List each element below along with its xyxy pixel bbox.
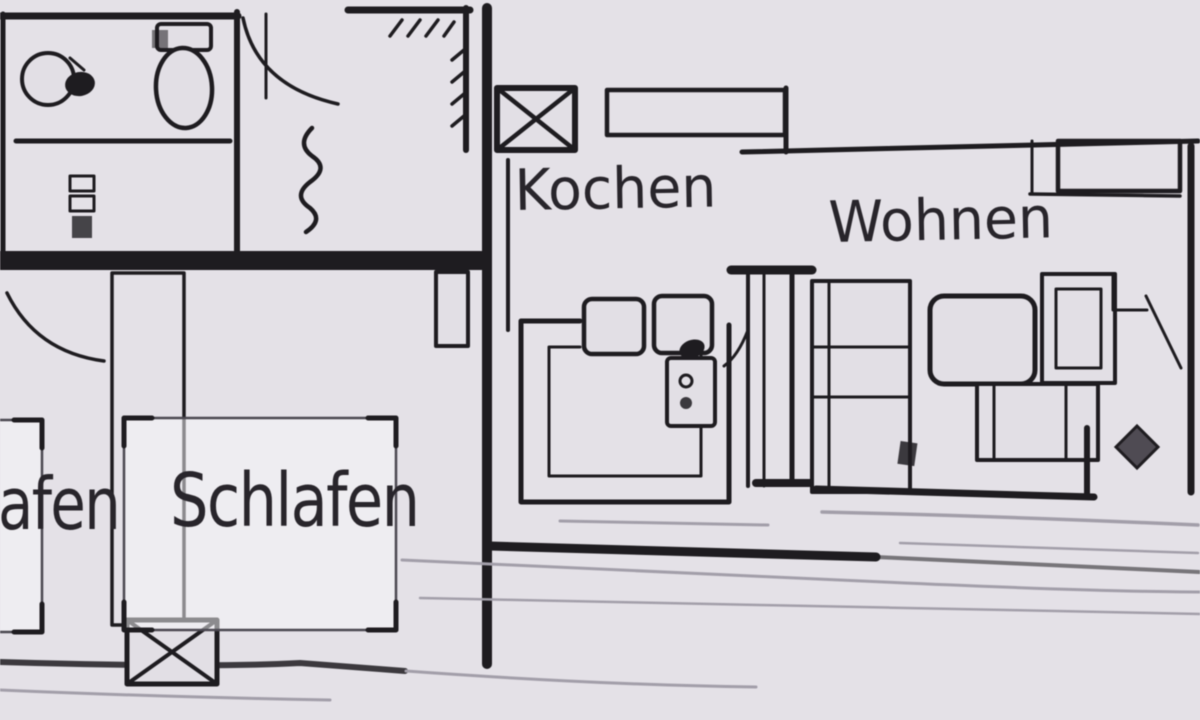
hallway	[243, 8, 470, 232]
thick-cross-wall	[0, 251, 492, 270]
kitchen-fixtures	[521, 296, 768, 525]
room-label-living: Wohnen	[828, 190, 1054, 252]
bathroom	[0, 12, 238, 266]
living-furniture	[812, 274, 1181, 497]
coffee-table-icon	[930, 296, 1035, 384]
annex-south-wall-faded	[876, 557, 1199, 572]
hatch-marks	[390, 20, 464, 126]
wardrobe	[436, 272, 468, 346]
door-swing-arc-left	[7, 293, 104, 361]
toilet-icon	[152, 24, 214, 129]
room-label-bedroom: Schlafen	[170, 464, 418, 538]
door-swing-arc	[243, 18, 338, 104]
armchair-icon	[1042, 274, 1115, 383]
room-label-bedroom-left: afen	[0, 468, 119, 540]
floorplan-sketch: Kochen Wohnen Schlafen afen	[0, 0, 1200, 720]
corner-l-line	[1113, 276, 1147, 310]
passage-door	[724, 270, 814, 486]
living-south-wall	[816, 489, 1094, 497]
corner-diagonal	[1146, 296, 1181, 368]
corner-mark	[897, 441, 917, 466]
window-hatch-icon-living	[1030, 141, 1180, 196]
bedroom	[124, 272, 468, 630]
sink-icon	[584, 299, 644, 354]
plant-diamond-icon	[1116, 426, 1158, 468]
room-label-kitchen: Kochen	[514, 159, 717, 220]
floorplan-svg	[0, 0, 1200, 720]
sofa-icon	[812, 281, 910, 492]
floorplan-drawing: Kochen Wohnen Schlafen afen	[0, 0, 1200, 720]
counter-base-line	[560, 521, 768, 525]
handwritten-mark-small	[70, 176, 94, 238]
sideboard-icon	[977, 384, 1098, 460]
annex-south-wall	[490, 546, 876, 557]
stove-icon	[667, 358, 715, 426]
handwritten-mark	[301, 128, 321, 232]
washbasin-icon	[22, 53, 97, 105]
window-hatch-icon-kitchen	[607, 90, 785, 135]
